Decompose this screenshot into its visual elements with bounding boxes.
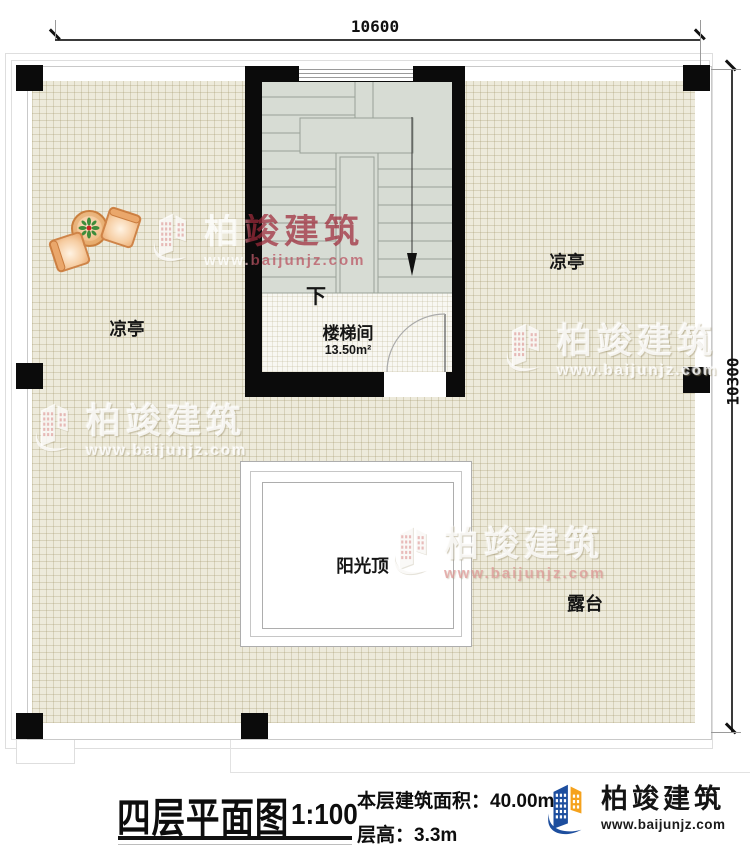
- floor-height-value: 3.3m: [414, 825, 457, 846]
- logo-url: www.baijunjz.com: [601, 817, 726, 832]
- extension-line: [711, 69, 741, 70]
- extension-line: [700, 20, 701, 65]
- drawing-title: 四层平面图: [117, 784, 289, 844]
- dimension-right: 10300: [724, 351, 743, 413]
- column-top-right: [683, 65, 710, 91]
- logo-brand: 柏竣建筑: [601, 786, 726, 813]
- room-label-stairwell: 楼梯间: [303, 325, 393, 344]
- company-logo: 柏竣建筑 www.baijunjz.com: [540, 779, 726, 839]
- title-block-divider-vertical: [230, 740, 231, 773]
- brand-building-icon: [540, 779, 594, 839]
- floor-height-label: 层高：: [357, 825, 414, 846]
- room-label-pavilion-left: 凉亭: [92, 320, 162, 339]
- room-label-sunroof: 阳光顶: [310, 557, 415, 576]
- drawing-scale: 1:100: [291, 799, 358, 832]
- extension-line: [711, 732, 741, 733]
- down-arrow-icon: [407, 253, 417, 276]
- floor-area-text: 本层建筑面积：40.00m²: [357, 786, 561, 813]
- dimension-top: 10600: [345, 17, 405, 36]
- room-label-pavilion-right: 凉亭: [532, 253, 602, 272]
- column-mid-right: [683, 367, 710, 393]
- title-block-divider-horizontal: [230, 772, 750, 773]
- door-swing-arc: [387, 314, 445, 372]
- door-icon: [387, 314, 445, 372]
- title-underline: [118, 836, 352, 840]
- column-bottom-center: [241, 713, 268, 739]
- stair-direction: [407, 117, 417, 276]
- eave-step-bottom-left: [16, 739, 75, 764]
- floor-area-label: 本层建筑面积：: [357, 791, 490, 812]
- room-label-terrace: 露台: [550, 595, 620, 615]
- floor-height-text: 层高：3.3m: [357, 820, 457, 847]
- title-underline-thin: [118, 844, 352, 845]
- column-mid-left: [16, 363, 43, 389]
- extension-line: [55, 20, 56, 39]
- column-top-left: [16, 65, 43, 91]
- dimension-line-top: [55, 39, 701, 41]
- stair-direction-label: 下: [296, 286, 336, 308]
- column-bottom-left: [16, 713, 43, 739]
- floor-plan-canvas: 柏竣建筑 www.baijunjz.com 柏竣建筑 www.baijunjz.…: [0, 0, 750, 849]
- room-area-stairwell: 13.50m²: [303, 344, 393, 358]
- stair-treads: [262, 82, 452, 293]
